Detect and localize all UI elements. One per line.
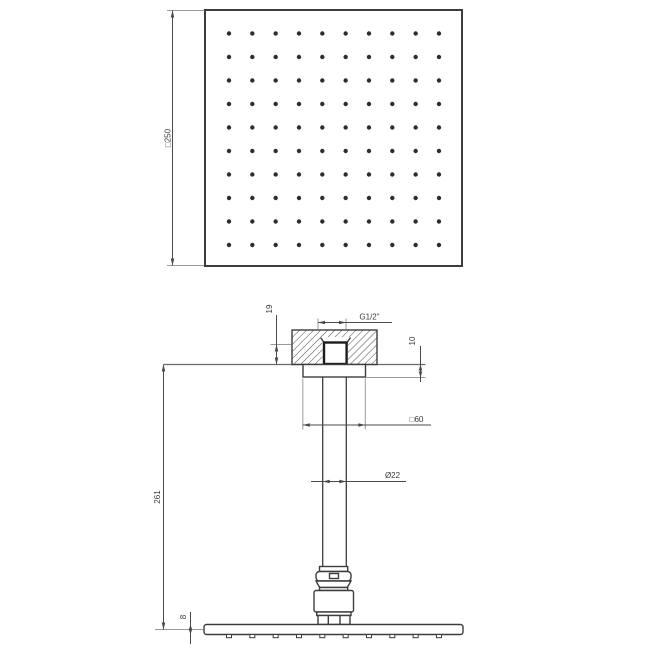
nozzle-dot <box>250 102 254 106</box>
arrowhead <box>162 623 166 630</box>
nozzle-dot <box>273 219 277 223</box>
nozzle-dot <box>273 196 277 200</box>
nozzle-dot <box>413 172 417 176</box>
nozzle-dot <box>390 219 394 223</box>
technical-drawing-sheet: □250 19 <box>0 0 648 648</box>
nozzle-dot <box>343 78 347 82</box>
nozzle-dot <box>273 125 277 129</box>
nozzle-dot <box>297 243 301 247</box>
nozzle-dot <box>413 125 417 129</box>
arrowhead <box>303 423 310 427</box>
nozzle-dot <box>227 219 231 223</box>
nozzle-dot <box>227 125 231 129</box>
top-view: □250 <box>164 10 463 266</box>
nozzle-dot <box>250 125 254 129</box>
pipe-end-flange <box>320 567 348 572</box>
nozzle-dot <box>227 196 231 200</box>
nozzle-dot <box>367 78 371 82</box>
nozzle-dot <box>390 78 394 82</box>
nozzle-dot <box>437 243 441 247</box>
nozzle-dot <box>367 219 371 223</box>
nozzle-dot <box>320 31 324 35</box>
nozzle-dot <box>343 172 347 176</box>
nozzle-dot <box>227 172 231 176</box>
head-face-outline <box>205 10 462 266</box>
nozzle-dot <box>437 219 441 223</box>
nozzle-dot <box>250 78 254 82</box>
nozzle-dot <box>227 78 231 82</box>
dim-label-arm-diameter: Ø22 <box>385 471 401 480</box>
nozzle-dot <box>273 172 277 176</box>
nozzle-dot <box>413 196 417 200</box>
nozzle-dot <box>437 149 441 153</box>
nozzle-dot <box>367 31 371 35</box>
nozzle-dot <box>413 102 417 106</box>
connector-cylinder <box>314 591 354 613</box>
arrowhead <box>419 365 423 371</box>
arrowhead <box>358 423 365 427</box>
nozzle-dot <box>297 149 301 153</box>
arrowhead <box>162 365 166 372</box>
nozzle-dot <box>250 219 254 223</box>
nozzle-dot <box>250 55 254 59</box>
nozzle-dot <box>390 243 394 247</box>
nozzle-dot <box>297 78 301 82</box>
nozzle-dot <box>273 31 277 35</box>
nozzle-dot <box>320 149 324 153</box>
nozzle-dot <box>390 196 394 200</box>
nozzle-dot <box>273 102 277 106</box>
nozzle-dot <box>297 196 301 200</box>
nozzle-dot <box>273 78 277 82</box>
mounting-hex-nut <box>318 616 350 625</box>
dim-label-head-size: □250 <box>164 128 173 147</box>
arrowhead <box>419 372 423 378</box>
nozzle-dot <box>343 102 347 106</box>
dim-label-thread: G1/2" <box>359 313 379 322</box>
nozzle-dot <box>437 102 441 106</box>
nozzle-dot <box>273 243 277 247</box>
nozzle-dot <box>250 31 254 35</box>
dim-label-drop-length: 261 <box>153 490 162 504</box>
arrowhead <box>323 480 330 484</box>
nozzle-dot <box>437 55 441 59</box>
nozzle-dot <box>413 243 417 247</box>
nozzle-dot <box>437 125 441 129</box>
nozzle-dot <box>390 55 394 59</box>
nozzle-dot <box>413 149 417 153</box>
nozzle-dot <box>320 196 324 200</box>
face-nozzle <box>296 635 301 638</box>
front-view: 19 G1/2" 10 □60 Ø22 261 <box>153 304 463 644</box>
connector-taper <box>316 581 351 588</box>
face-nozzle <box>250 635 255 638</box>
nozzle-dot <box>273 149 277 153</box>
nozzle-dot <box>297 125 301 129</box>
face-nozzle <box>320 635 325 638</box>
nozzle-dot <box>413 219 417 223</box>
nozzle-dot <box>297 31 301 35</box>
nozzle-dot <box>367 172 371 176</box>
face-nozzle <box>273 635 278 638</box>
nozzle-dot <box>250 196 254 200</box>
arrowhead <box>275 358 279 365</box>
nozzle-dot <box>273 55 277 59</box>
arrowhead <box>339 480 346 484</box>
nozzle-dot <box>413 31 417 35</box>
nozzle-dot <box>343 149 347 153</box>
nozzle-dot <box>413 55 417 59</box>
nozzle-dot <box>297 172 301 176</box>
shower-head-drawing: □250 19 <box>0 0 648 648</box>
nozzle-dot <box>437 196 441 200</box>
arrowhead <box>275 345 279 352</box>
head-plate-side <box>204 625 463 635</box>
dim-label-head-thickness: 8 <box>179 614 188 619</box>
nozzle-dot <box>320 125 324 129</box>
face-nozzle <box>390 635 395 638</box>
face-nozzle <box>227 635 232 638</box>
nozzle-dot <box>437 31 441 35</box>
nozzle-dot <box>320 172 324 176</box>
nozzle-dot <box>343 125 347 129</box>
nozzle-dot <box>367 102 371 106</box>
nozzle-dot <box>297 55 301 59</box>
nozzle-dot <box>297 102 301 106</box>
face-nozzle <box>343 635 348 638</box>
nozzle-dot <box>250 149 254 153</box>
arrowhead <box>339 321 346 325</box>
ceiling-escutcheon <box>303 365 366 378</box>
nozzle-dot <box>227 149 231 153</box>
face-nozzle <box>413 635 418 638</box>
nozzle-dot <box>343 243 347 247</box>
nozzle-dot <box>413 78 417 82</box>
nozzle-dot <box>320 243 324 247</box>
nozzle-dot <box>367 149 371 153</box>
nozzle-dot <box>297 219 301 223</box>
dim-label-flange-size: □60 <box>410 415 424 424</box>
nozzle-dot <box>320 55 324 59</box>
nozzle-dot <box>437 78 441 82</box>
nozzle-dot <box>367 55 371 59</box>
nozzle-dot <box>320 102 324 106</box>
nozzle-dot <box>227 31 231 35</box>
nozzle-dot <box>343 31 347 35</box>
nozzle-dot <box>437 172 441 176</box>
nozzle-dot <box>250 243 254 247</box>
arrowhead <box>171 259 175 266</box>
nozzle-dot <box>390 149 394 153</box>
nozzle-dot <box>367 243 371 247</box>
nozzle-dot <box>367 196 371 200</box>
nozzle-dot <box>343 196 347 200</box>
nozzle-dot <box>390 125 394 129</box>
nozzle-dot <box>367 125 371 129</box>
arrowhead <box>189 629 193 635</box>
face-nozzle <box>366 635 371 638</box>
nozzle-dot <box>343 219 347 223</box>
arrowhead <box>171 11 175 18</box>
thread-socket-square <box>324 343 347 365</box>
nozzle-dot <box>227 55 231 59</box>
nozzle-dot <box>390 172 394 176</box>
nozzle-dot <box>227 102 231 106</box>
nozzle-dot <box>250 172 254 176</box>
nozzle-dot <box>390 102 394 106</box>
arrowhead <box>318 321 325 325</box>
dim-label-thread-depth: 19 <box>265 304 274 313</box>
dim-label-flange-height: 10 <box>408 336 417 345</box>
nozzle-dot <box>343 55 347 59</box>
nozzle-dot <box>390 31 394 35</box>
nozzle-dot <box>320 219 324 223</box>
face-nozzle <box>436 635 441 638</box>
nozzle-dot <box>227 243 231 247</box>
nozzle-dot <box>320 78 324 82</box>
